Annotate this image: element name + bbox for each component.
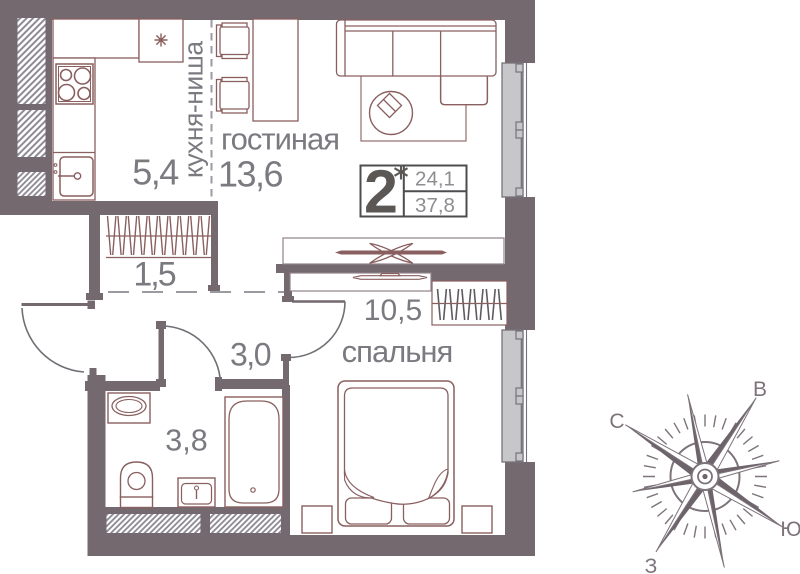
svg-text:3,8: 3,8: [165, 424, 207, 458]
svg-text:С: С: [609, 410, 624, 433]
svg-text:13,6: 13,6: [218, 154, 283, 195]
svg-text:спальня: спальня: [342, 334, 453, 369]
svg-text:В: В: [753, 378, 767, 401]
svg-text:гостиная: гостиная: [221, 122, 339, 157]
svg-text:1,5: 1,5: [133, 256, 175, 294]
svg-text:10,5: 10,5: [364, 294, 422, 327]
svg-text:5,4: 5,4: [132, 152, 178, 193]
svg-text:3,0: 3,0: [230, 337, 271, 373]
svg-text:2: 2: [364, 158, 398, 226]
svg-text:24,1: 24,1: [415, 168, 455, 191]
svg-text:37,8: 37,8: [415, 194, 455, 217]
svg-text:З: З: [645, 555, 658, 574]
svg-text:Ю: Ю: [780, 518, 800, 541]
svg-text:кухня-ниша: кухня-ниша: [179, 41, 209, 178]
